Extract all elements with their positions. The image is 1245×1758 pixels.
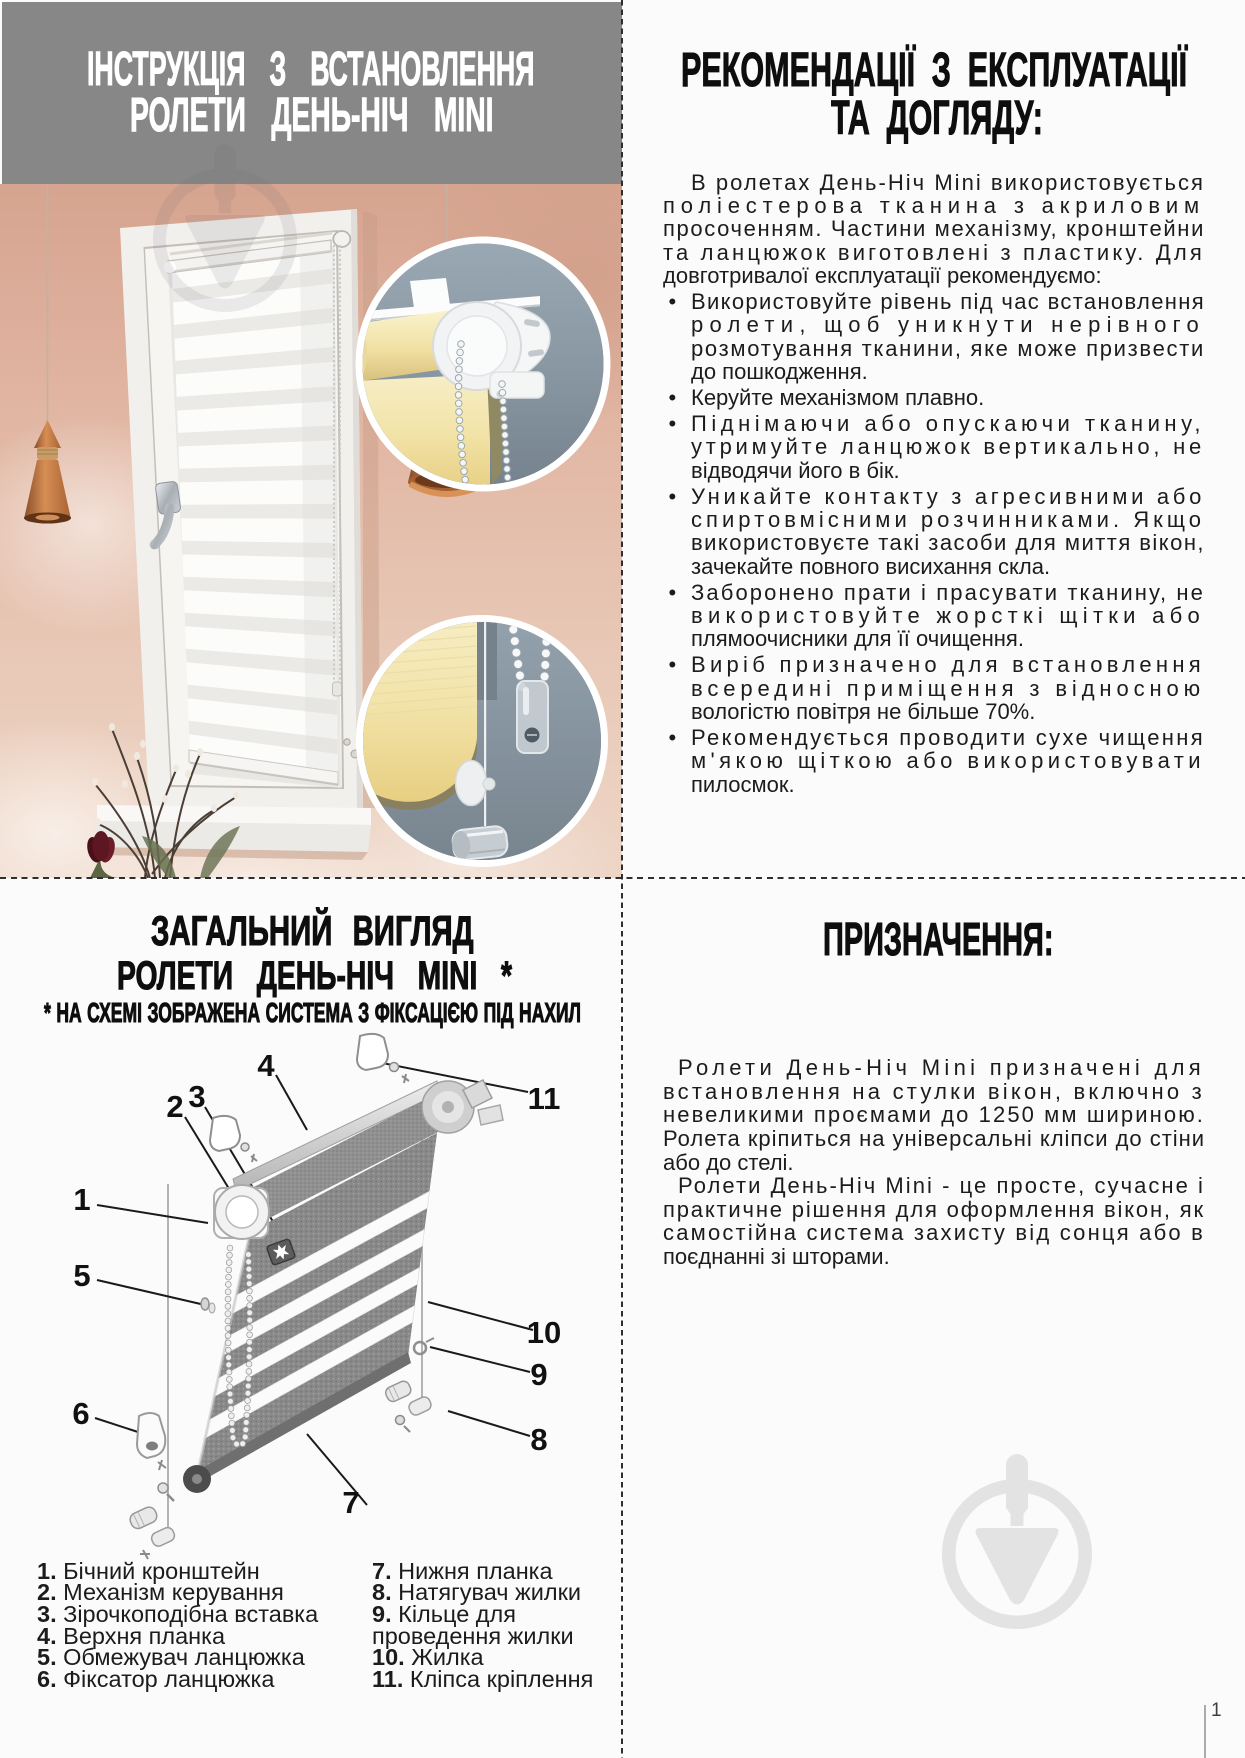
- svg-text:9: 9: [530, 1357, 547, 1392]
- svg-text:4: 4: [257, 1048, 275, 1083]
- svg-text:1: 1: [73, 1182, 90, 1217]
- svg-text:7: 7: [342, 1485, 359, 1520]
- svg-text:5: 5: [73, 1258, 90, 1293]
- svg-text:3: 3: [188, 1079, 205, 1114]
- svg-text:8: 8: [530, 1422, 547, 1457]
- svg-text:11: 11: [528, 1081, 561, 1116]
- svg-text:10: 10: [527, 1315, 561, 1350]
- svg-text:2: 2: [166, 1089, 183, 1124]
- svg-text:6: 6: [72, 1396, 89, 1431]
